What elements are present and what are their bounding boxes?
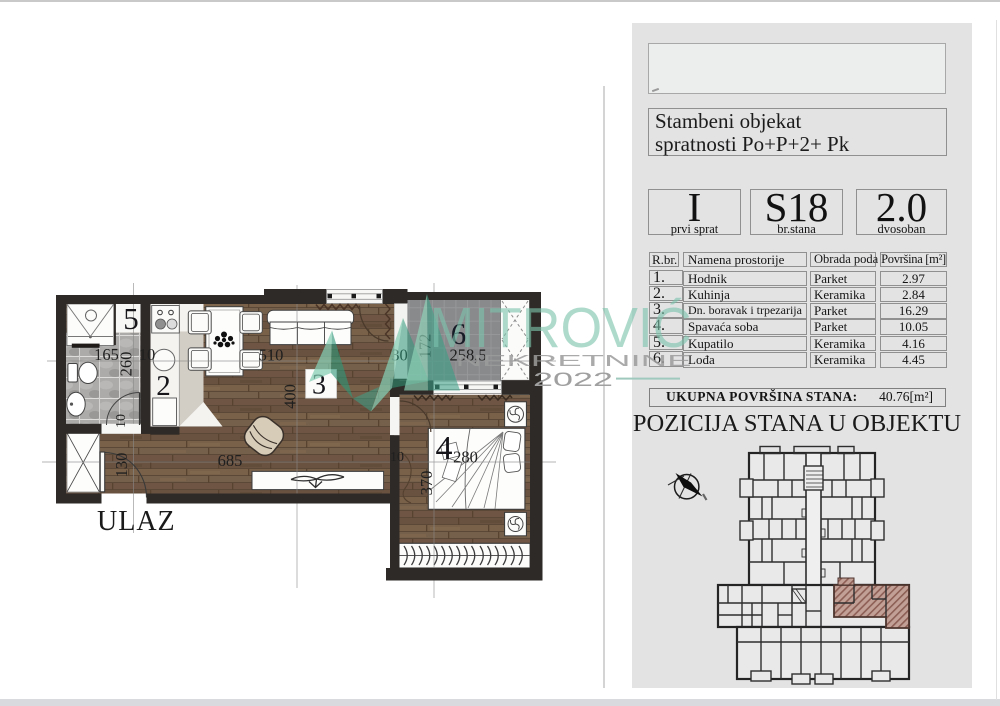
svg-text:3: 3 [312,370,326,401]
svg-text:172: 172 [416,334,435,359]
svg-text:260: 260 [117,352,136,377]
svg-text:2: 2 [156,370,171,402]
svg-text:5: 5 [123,301,139,336]
svg-text:370: 370 [417,471,436,496]
svg-text:685: 685 [218,451,243,470]
svg-text:280: 280 [453,448,478,467]
svg-text:130: 130 [112,453,131,478]
svg-text:4: 4 [436,430,453,467]
svg-text:165: 165 [94,345,119,364]
svg-text:10: 10 [114,414,129,428]
svg-text:ULAZ: ULAZ [97,506,176,537]
svg-text:30: 30 [391,346,408,365]
svg-text:10: 10 [139,345,156,364]
svg-text:10: 10 [390,450,404,465]
svg-text:6: 6 [451,316,467,351]
svg-text:510: 510 [259,346,284,365]
svg-text:400: 400 [281,384,300,409]
